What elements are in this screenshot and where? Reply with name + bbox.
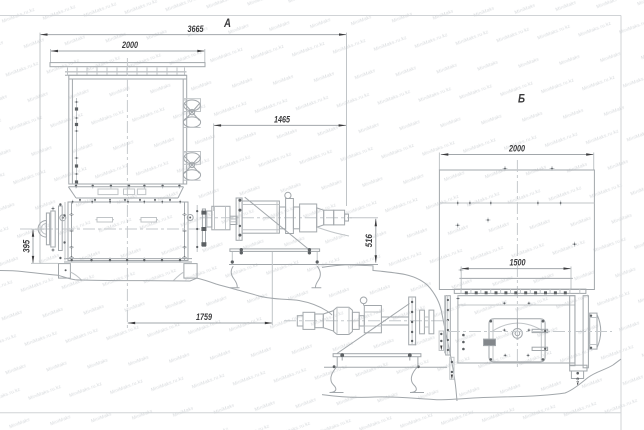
svg-text:1759: 1759 bbox=[196, 312, 212, 322]
svg-text:2000: 2000 bbox=[508, 144, 525, 154]
svg-text:1500: 1500 bbox=[510, 258, 526, 268]
svg-text:1465: 1465 bbox=[274, 115, 291, 125]
svg-text:395: 395 bbox=[22, 239, 32, 253]
svg-text:516: 516 bbox=[364, 233, 374, 247]
svg-text:Б: Б bbox=[518, 92, 525, 106]
svg-text:А: А bbox=[223, 16, 231, 30]
svg-text:3665: 3665 bbox=[188, 24, 205, 34]
svg-text:2000: 2000 bbox=[121, 40, 138, 50]
